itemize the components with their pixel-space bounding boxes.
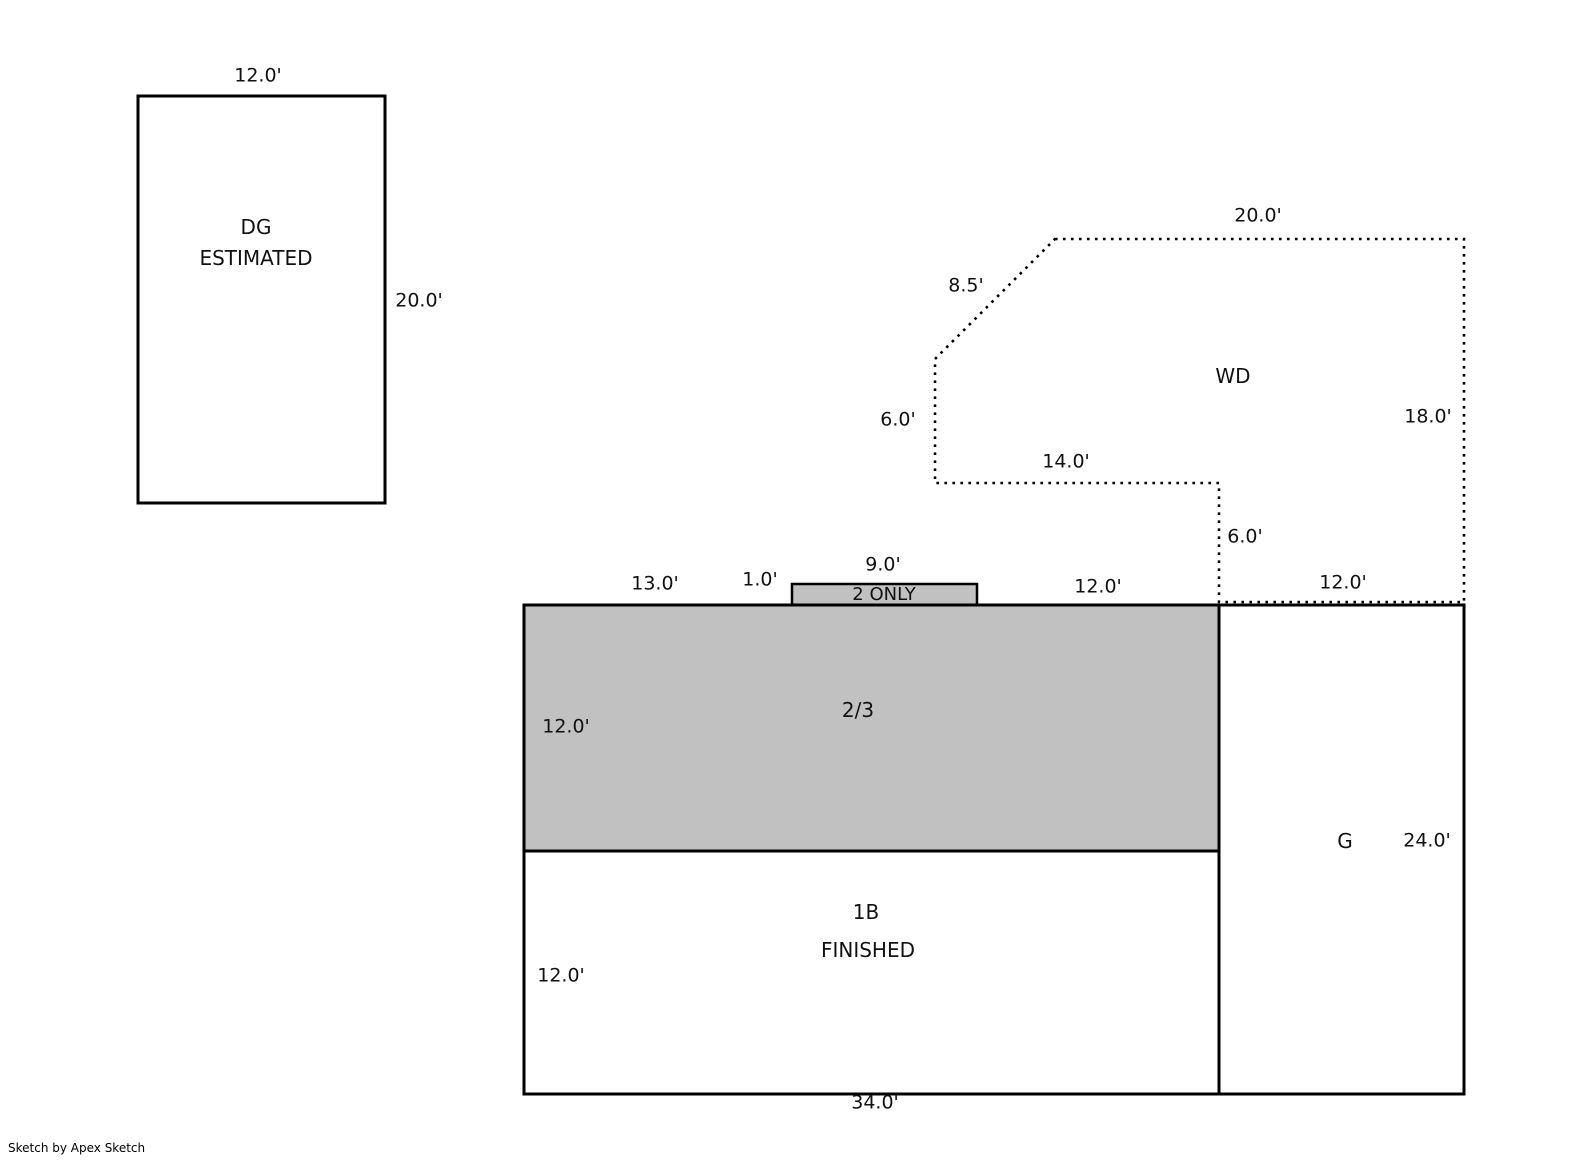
apex-sketch-watermark: Sketch by Apex Sketch bbox=[8, 1141, 145, 1155]
wd-right-dimension: 18.0' bbox=[1404, 408, 1452, 427]
lower-bottom-dimension: 34.0' bbox=[851, 1094, 899, 1113]
lower-area-label: 1B bbox=[853, 902, 879, 922]
dg-area-label: DG bbox=[241, 217, 272, 237]
wd-deck-outline-shape bbox=[935, 239, 1464, 602]
dg-right-dimension: 20.0' bbox=[395, 292, 443, 311]
wd-inner-bottom-dimension: 14.0' bbox=[1042, 453, 1090, 472]
upper-area-label: 2/3 bbox=[842, 700, 874, 720]
lower-area-shape bbox=[524, 851, 1219, 1094]
lower-subtitle-label: FINISHED bbox=[821, 940, 915, 960]
dg-subtitle-label: ESTIMATED bbox=[199, 248, 312, 268]
wd-top-dimension: 20.0' bbox=[1234, 207, 1282, 226]
upper-top-seg12-dimension: 12.0' bbox=[1074, 578, 1122, 597]
apex-sketch-canvas: 12.0' DG ESTIMATED 20.0' 20.0' 8.5' WD 1… bbox=[0, 0, 1585, 1163]
upper-top-seg9-dimension: 9.0' bbox=[865, 556, 900, 575]
bump-2only-label: 2 ONLY bbox=[852, 586, 915, 604]
dg-outline-shape bbox=[138, 96, 385, 503]
upper-area-shape bbox=[524, 605, 1219, 851]
upper-top-seg13-dimension: 13.0' bbox=[631, 575, 679, 594]
wd-diagonal-dimension: 8.5' bbox=[948, 277, 983, 296]
garage-area-label: G bbox=[1337, 831, 1353, 851]
garage-height-dimension: 24.0' bbox=[1403, 832, 1451, 851]
wd-left-dimension: 6.0' bbox=[880, 411, 915, 430]
wd-area-label: WD bbox=[1215, 366, 1250, 386]
dg-top-dimension: 12.0' bbox=[234, 67, 282, 86]
upper-top-seg1-dimension: 1.0' bbox=[742, 571, 777, 590]
lower-left-dimension: 12.0' bbox=[537, 967, 585, 986]
wd-bottom-dimension: 12.0' bbox=[1319, 574, 1367, 593]
upper-left-dimension: 12.0' bbox=[542, 718, 590, 737]
wd-step-dimension: 6.0' bbox=[1227, 528, 1262, 547]
